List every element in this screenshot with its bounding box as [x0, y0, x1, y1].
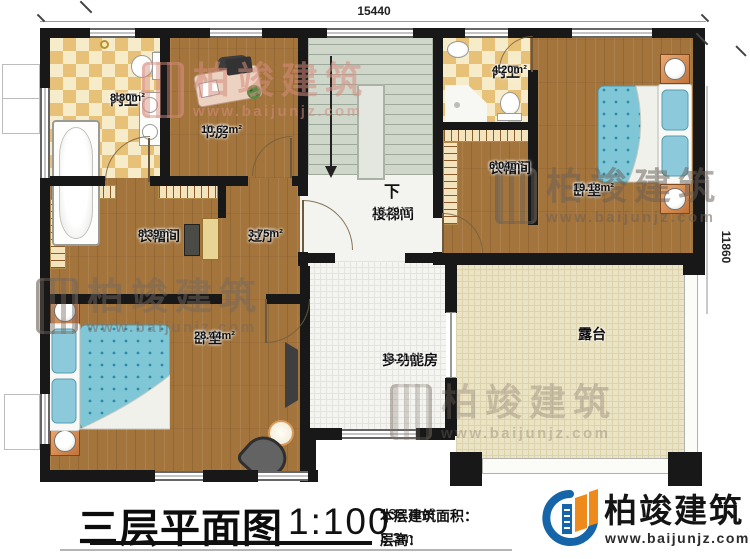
wardrobe-rack — [443, 128, 531, 142]
floor-terrace-tile — [456, 263, 686, 461]
window — [327, 28, 413, 38]
window — [155, 471, 203, 481]
plan-title: 三层平面图 — [78, 496, 283, 554]
brand-url: www.baijunjz.com — [605, 530, 750, 546]
sliding-door — [446, 312, 456, 378]
desk-group — [188, 54, 268, 114]
wall — [40, 178, 50, 394]
cabinet — [184, 224, 200, 256]
toilet-tank — [497, 113, 522, 121]
tv — [285, 342, 298, 408]
window — [90, 28, 135, 38]
exterior-platform — [2, 64, 40, 100]
wall — [416, 428, 455, 440]
lamp-icon — [664, 58, 686, 80]
window — [40, 394, 50, 444]
dimension-line — [40, 21, 706, 22]
dimension-top: 15440 — [357, 4, 390, 18]
window — [210, 28, 262, 38]
wall — [40, 294, 222, 304]
lamp-icon — [664, 188, 686, 210]
stair-down-label: 下 — [384, 178, 400, 202]
window — [572, 28, 652, 38]
lamp-icon — [54, 430, 76, 452]
wall — [262, 28, 327, 38]
exterior-platform — [2, 98, 40, 134]
wall — [40, 470, 155, 482]
parapet-bottom — [482, 458, 670, 474]
floor-plan-canvas: 15440 11860 柏竣建筑 www.baijunjz.com 柏竣建筑 w… — [0, 0, 750, 559]
dimension-right: 11860 — [719, 222, 733, 272]
wall — [40, 28, 50, 88]
column — [450, 452, 482, 486]
double-bed — [598, 84, 692, 184]
corner-tick — [80, 1, 93, 14]
wall — [135, 28, 210, 38]
nightstand — [660, 54, 690, 84]
door-leaf — [290, 138, 292, 178]
door-leaf — [148, 138, 150, 182]
window — [258, 471, 308, 481]
nightstand — [660, 184, 690, 214]
wall — [693, 28, 705, 268]
parapet-right — [684, 270, 698, 454]
door-leaf — [265, 299, 267, 343]
toilet — [131, 55, 153, 78]
window — [342, 429, 416, 439]
column — [668, 452, 702, 486]
double-bed — [48, 323, 170, 431]
corner-tick — [735, 45, 746, 56]
brand-name: 柏竣建筑 — [604, 494, 744, 527]
wall — [218, 186, 226, 218]
plan-scale: 1:100 — [288, 501, 391, 543]
title-underline-thin — [60, 549, 512, 551]
window — [465, 28, 508, 38]
cabinet — [202, 218, 219, 260]
stair-rail — [357, 84, 385, 180]
wall — [433, 122, 538, 130]
stair-arrow — [330, 56, 332, 168]
door-leaf — [302, 200, 304, 252]
exterior-platform — [4, 394, 40, 450]
wall — [203, 470, 258, 482]
washbasin — [447, 41, 469, 58]
door-leaf — [442, 213, 444, 253]
brand-logo-icon — [540, 486, 602, 550]
door-leaf — [531, 38, 533, 72]
pendant-lamp — [100, 40, 109, 49]
exterior-line — [706, 86, 708, 314]
wall — [683, 253, 705, 275]
window — [40, 88, 50, 178]
